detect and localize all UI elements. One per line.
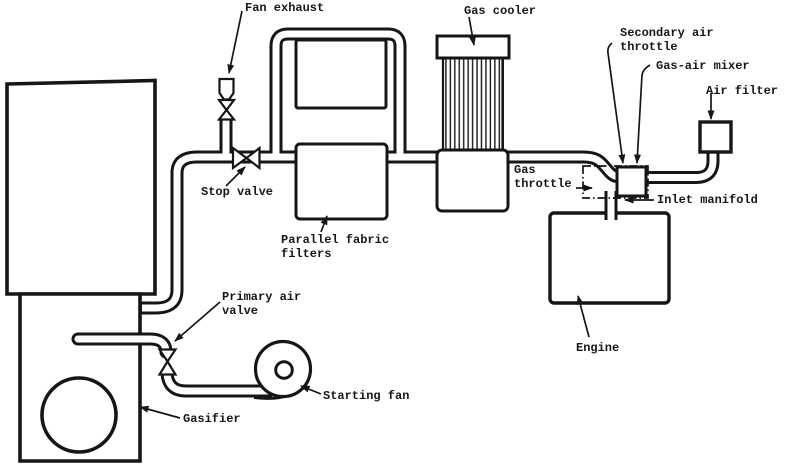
fan-exhaust-nozzle <box>220 79 234 100</box>
label-secondary-air-throttle: Secondary air throttle <box>620 26 714 54</box>
label-stop-valve: Stop valve <box>201 185 273 199</box>
gas-air-mixer-box <box>617 167 646 196</box>
leader-gasifier <box>140 407 180 418</box>
label-inlet-manifold: Inlet manifold <box>657 193 758 207</box>
fabric-filter-upper-box <box>296 40 386 108</box>
label-parallel-fabric-filters: Parallel fabric filters <box>281 233 389 261</box>
starting-fan-hub <box>276 362 293 379</box>
air-filter-box <box>700 122 731 152</box>
fabric-filter-lower-box <box>296 144 387 219</box>
gas-cooler-tubes <box>442 56 504 152</box>
engine-box <box>550 213 669 303</box>
label-gas-throttle: Gas throttle <box>514 163 572 191</box>
gasifier-port <box>42 378 116 452</box>
label-gasifier: Gasifier <box>183 412 241 426</box>
gasifier-hopper <box>7 81 155 295</box>
leader-primary-air-valve <box>175 302 220 341</box>
primary-air-valve-lower <box>160 362 176 375</box>
leader-gas-air-mixer <box>637 65 650 163</box>
diagram-canvas: Fan exhaust Gas cooler Secondary air thr… <box>0 0 792 469</box>
leader-stop-valve <box>226 167 245 186</box>
leader-secondary-air-throttle <box>608 43 623 163</box>
label-gas-air-mixer: Gas-air mixer <box>656 59 750 73</box>
label-engine: Engine <box>576 341 619 355</box>
fan-exhaust-valve-lower <box>219 110 234 120</box>
label-air-filter: Air filter <box>706 84 778 98</box>
leader-starting-fan <box>301 386 321 394</box>
leader-fan-exhaust <box>229 11 242 73</box>
label-primary-air-valve: Primary air valve <box>222 290 301 318</box>
label-gas-cooler: Gas cooler <box>464 4 536 18</box>
gas-cooler-sump <box>437 150 508 211</box>
label-fan-exhaust: Fan exhaust <box>245 1 324 15</box>
label-starting-fan: Starting fan <box>323 389 409 403</box>
